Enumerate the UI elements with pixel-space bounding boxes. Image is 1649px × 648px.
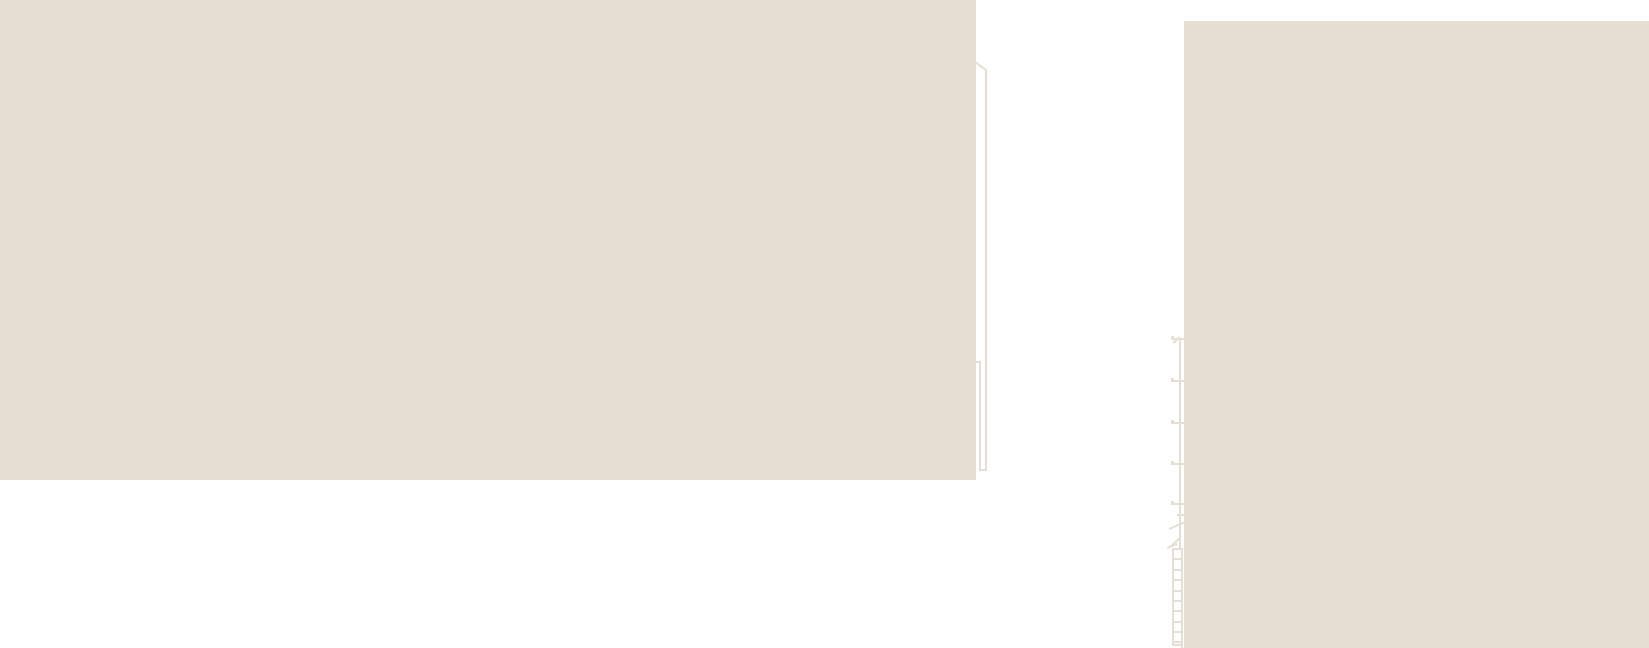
mast-tick-nub bbox=[1171, 420, 1174, 422]
mast-stub bbox=[1177, 514, 1185, 516]
ladder-rung bbox=[1172, 548, 1183, 550]
ladder-rung bbox=[1172, 569, 1183, 571]
ladder-rung bbox=[1172, 600, 1183, 602]
mast-tick-nub bbox=[1171, 461, 1174, 463]
pole-cap-diagonal bbox=[974, 61, 986, 71]
right-building-face bbox=[1184, 21, 1649, 648]
ladder-rung bbox=[1172, 590, 1183, 592]
ladder-rung bbox=[1172, 610, 1183, 612]
mast-tick bbox=[1171, 380, 1184, 382]
ladder-rung bbox=[1172, 621, 1183, 623]
mast-tick-nub bbox=[1171, 501, 1174, 503]
ladder-rung bbox=[1172, 558, 1183, 560]
mast-tick-nub bbox=[1171, 378, 1174, 380]
mast-tick bbox=[1171, 422, 1184, 424]
mast-line bbox=[1179, 338, 1181, 548]
mast-tick bbox=[1171, 463, 1184, 465]
break-diagonal-upper bbox=[1169, 521, 1186, 529]
mast-tick bbox=[1171, 338, 1184, 340]
left-building-face bbox=[0, 0, 976, 480]
ladder-bottom-bar bbox=[1172, 644, 1183, 646]
mast-tick-nub bbox=[1171, 336, 1174, 338]
mast-tick bbox=[1171, 503, 1184, 505]
drawing-canvas bbox=[0, 0, 1649, 648]
pole-inner-line bbox=[979, 362, 981, 471]
ladder-rung bbox=[1172, 579, 1183, 581]
pole-top-stub bbox=[976, 361, 981, 363]
pole-base-bar bbox=[979, 469, 987, 471]
pole-outer-line bbox=[985, 69, 987, 471]
ladder-right-rail bbox=[1181, 548, 1183, 648]
ladder-rung bbox=[1172, 631, 1183, 633]
ladder-rung bbox=[1172, 641, 1183, 643]
